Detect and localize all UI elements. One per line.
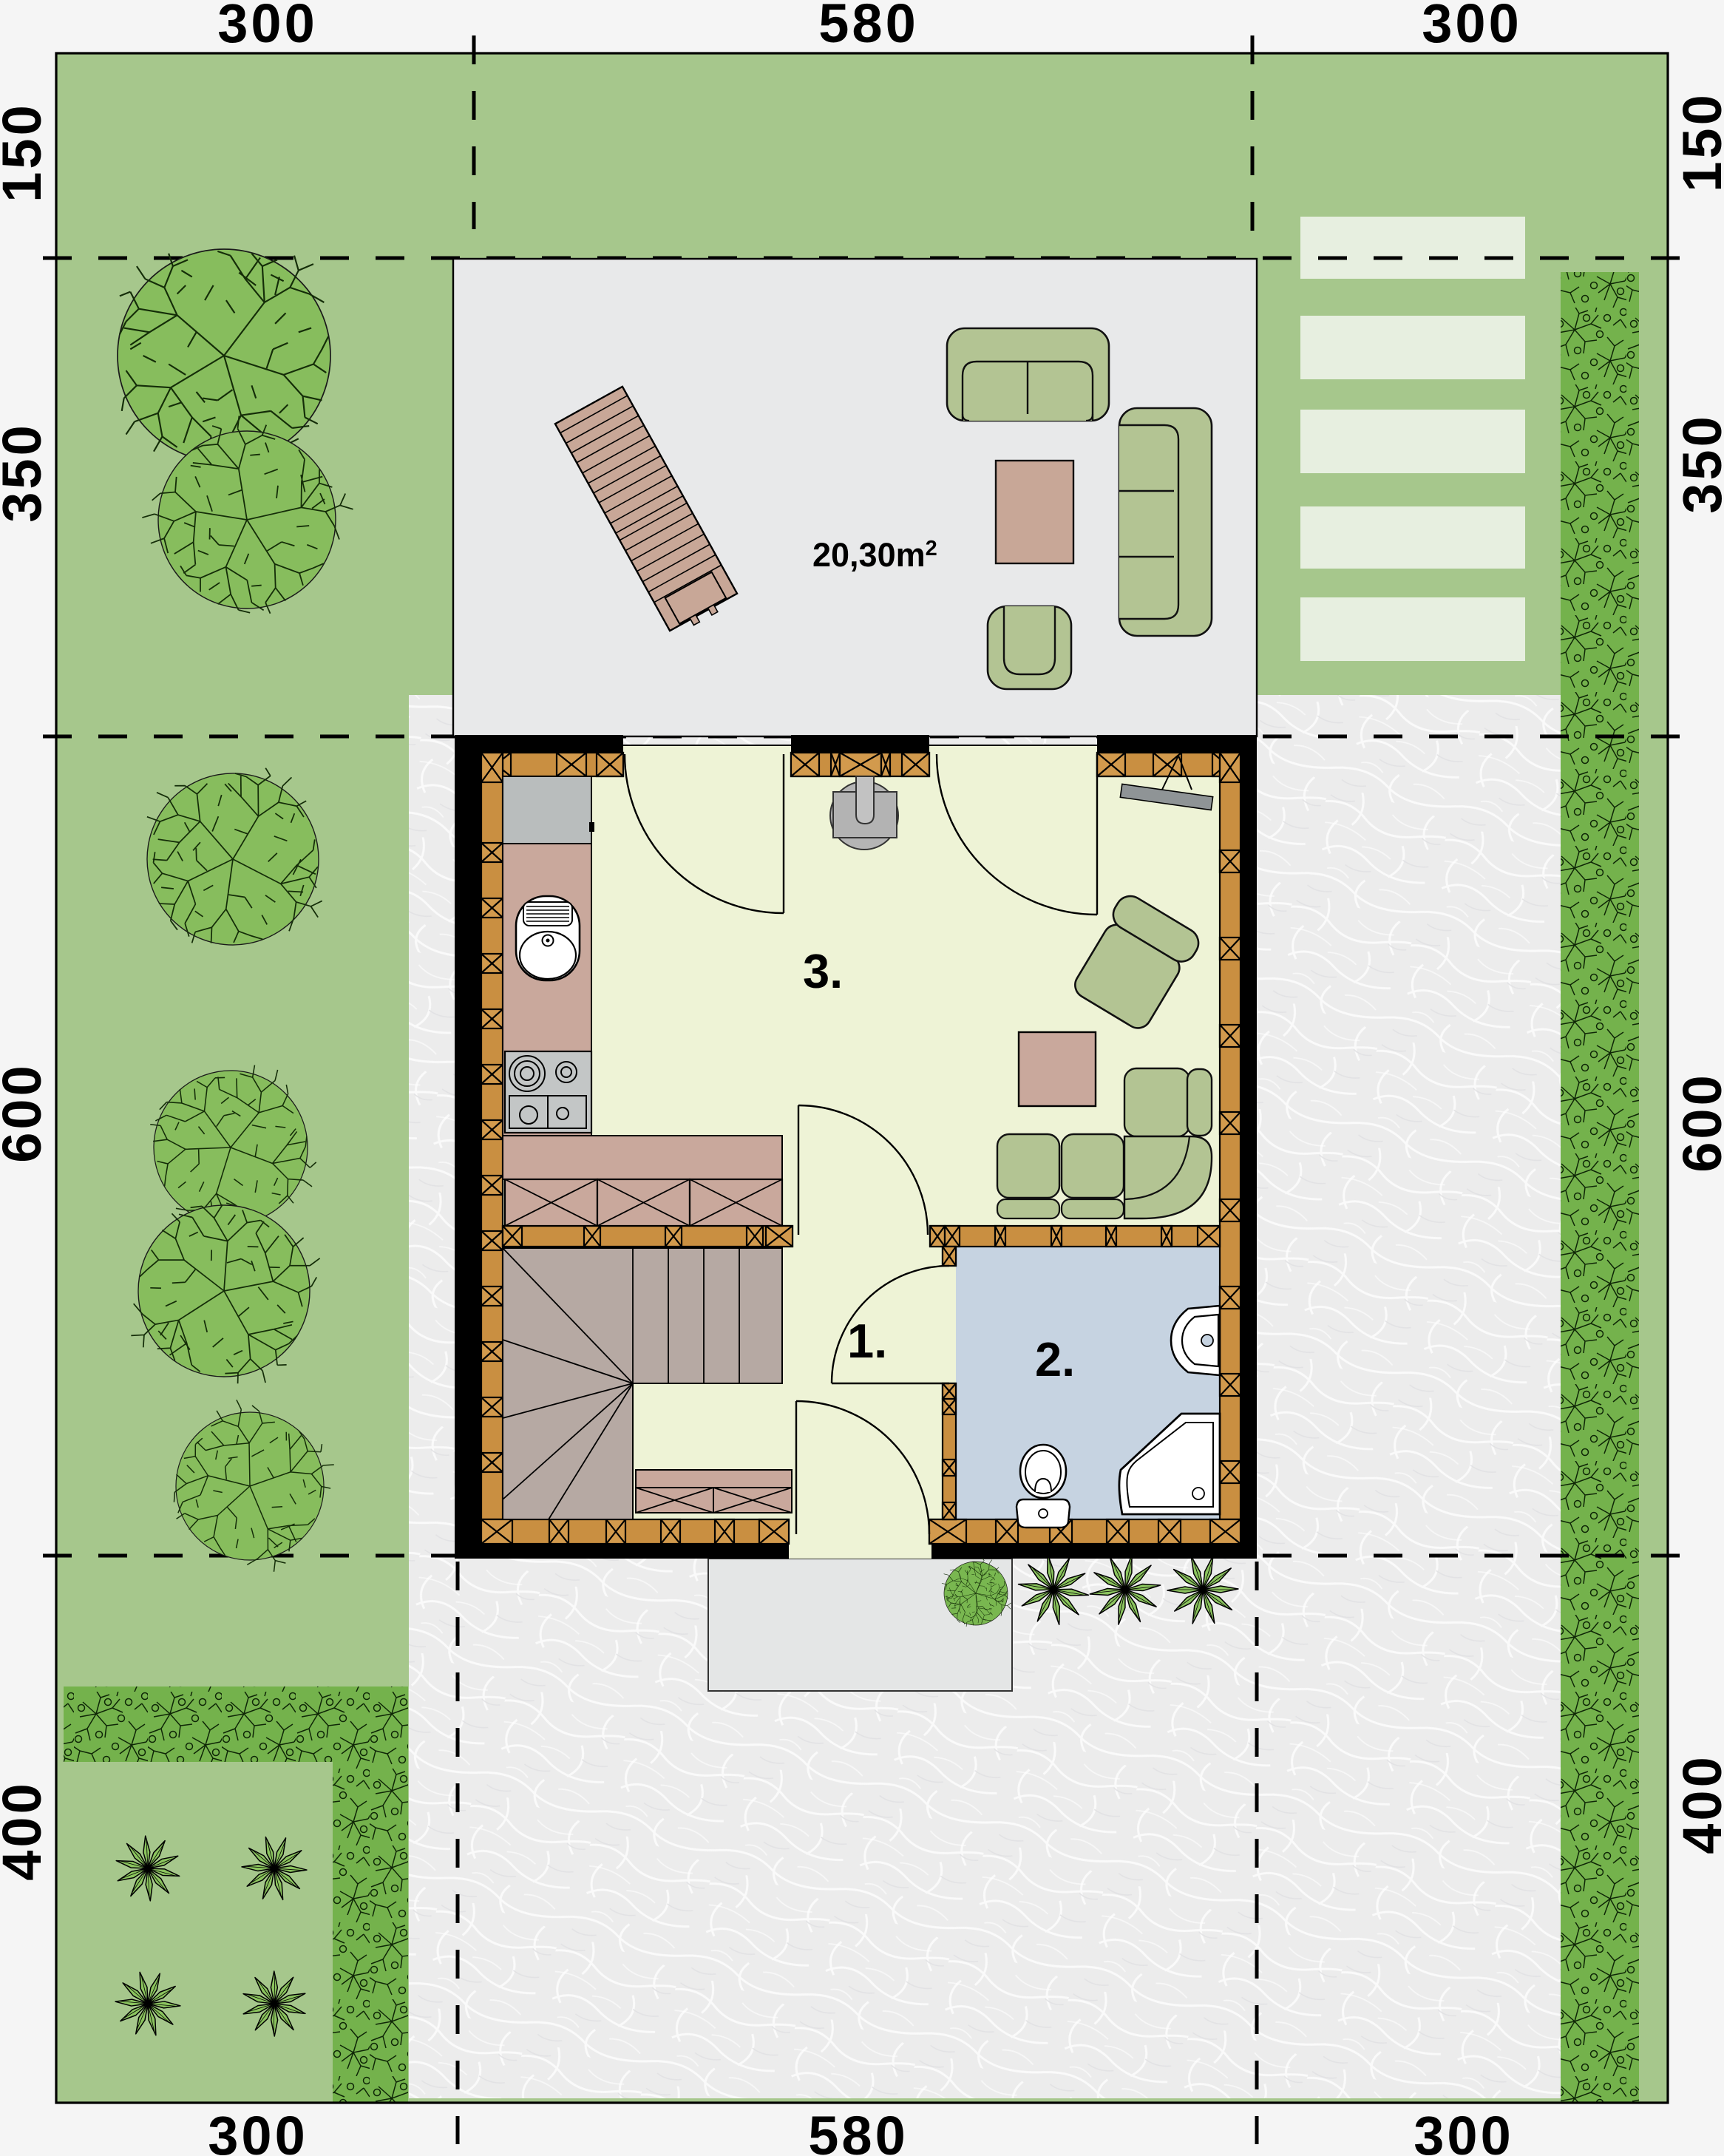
svg-text:580: 580 [818,0,918,54]
svg-text:300: 300 [217,0,317,54]
svg-text:300: 300 [1414,2105,1513,2156]
svg-text:1.: 1. [847,1314,887,1368]
svg-text:400: 400 [0,1780,52,1880]
svg-text:150: 150 [0,102,52,202]
svg-text:350: 350 [0,422,52,522]
svg-text:150: 150 [1672,92,1724,191]
svg-text:600: 600 [0,1062,52,1162]
svg-text:300: 300 [1422,0,1521,54]
svg-text:350: 350 [1672,413,1724,513]
svg-text:20,30m2: 20,30m2 [812,536,937,574]
svg-text:300: 300 [208,2105,308,2156]
svg-text:3.: 3. [803,944,843,998]
svg-text:580: 580 [808,2105,908,2156]
svg-text:2.: 2. [1035,1332,1075,1386]
svg-text:400: 400 [1672,1754,1724,1854]
svg-text:600: 600 [1672,1072,1724,1172]
